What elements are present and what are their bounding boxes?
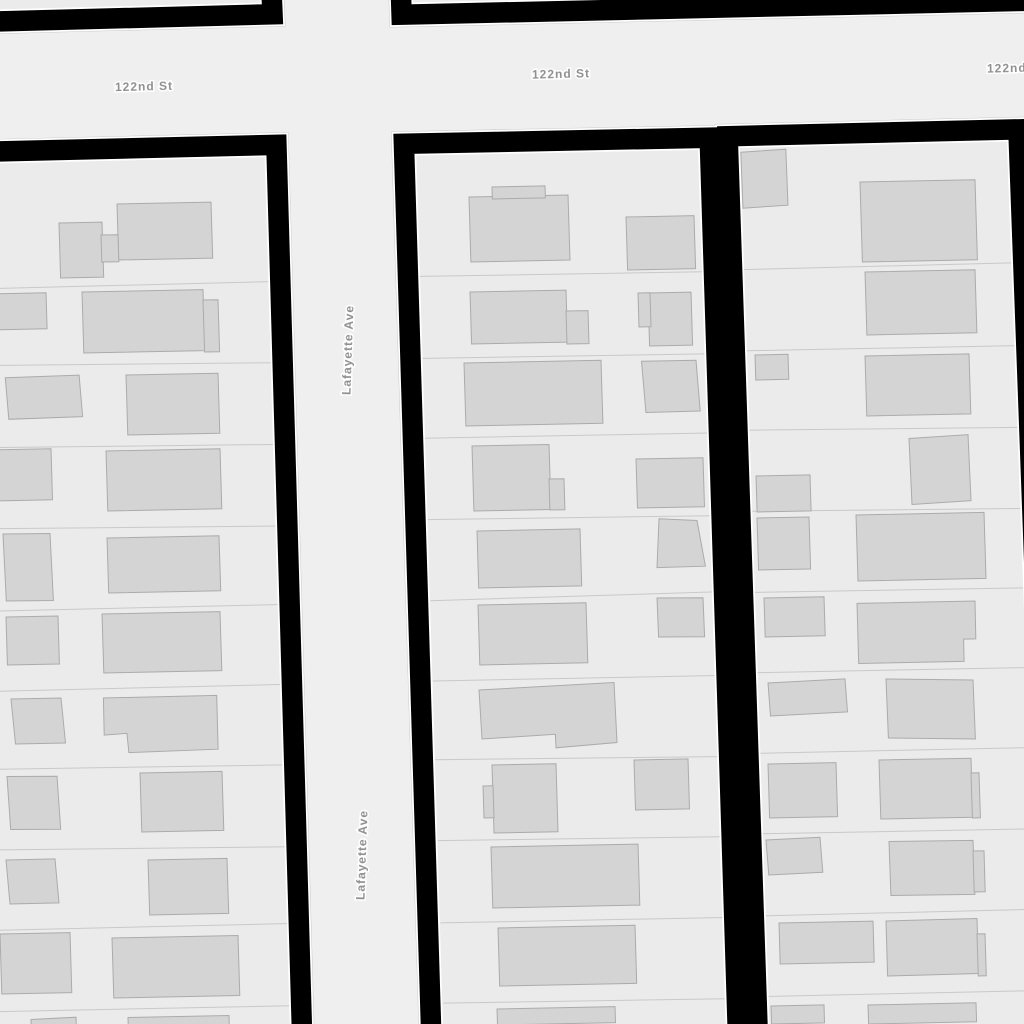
svg-text:122nd St: 122nd St [987, 60, 1024, 75]
svg-text:122nd St: 122nd St [115, 79, 173, 94]
svg-text:122nd St: 122nd St [532, 66, 590, 81]
